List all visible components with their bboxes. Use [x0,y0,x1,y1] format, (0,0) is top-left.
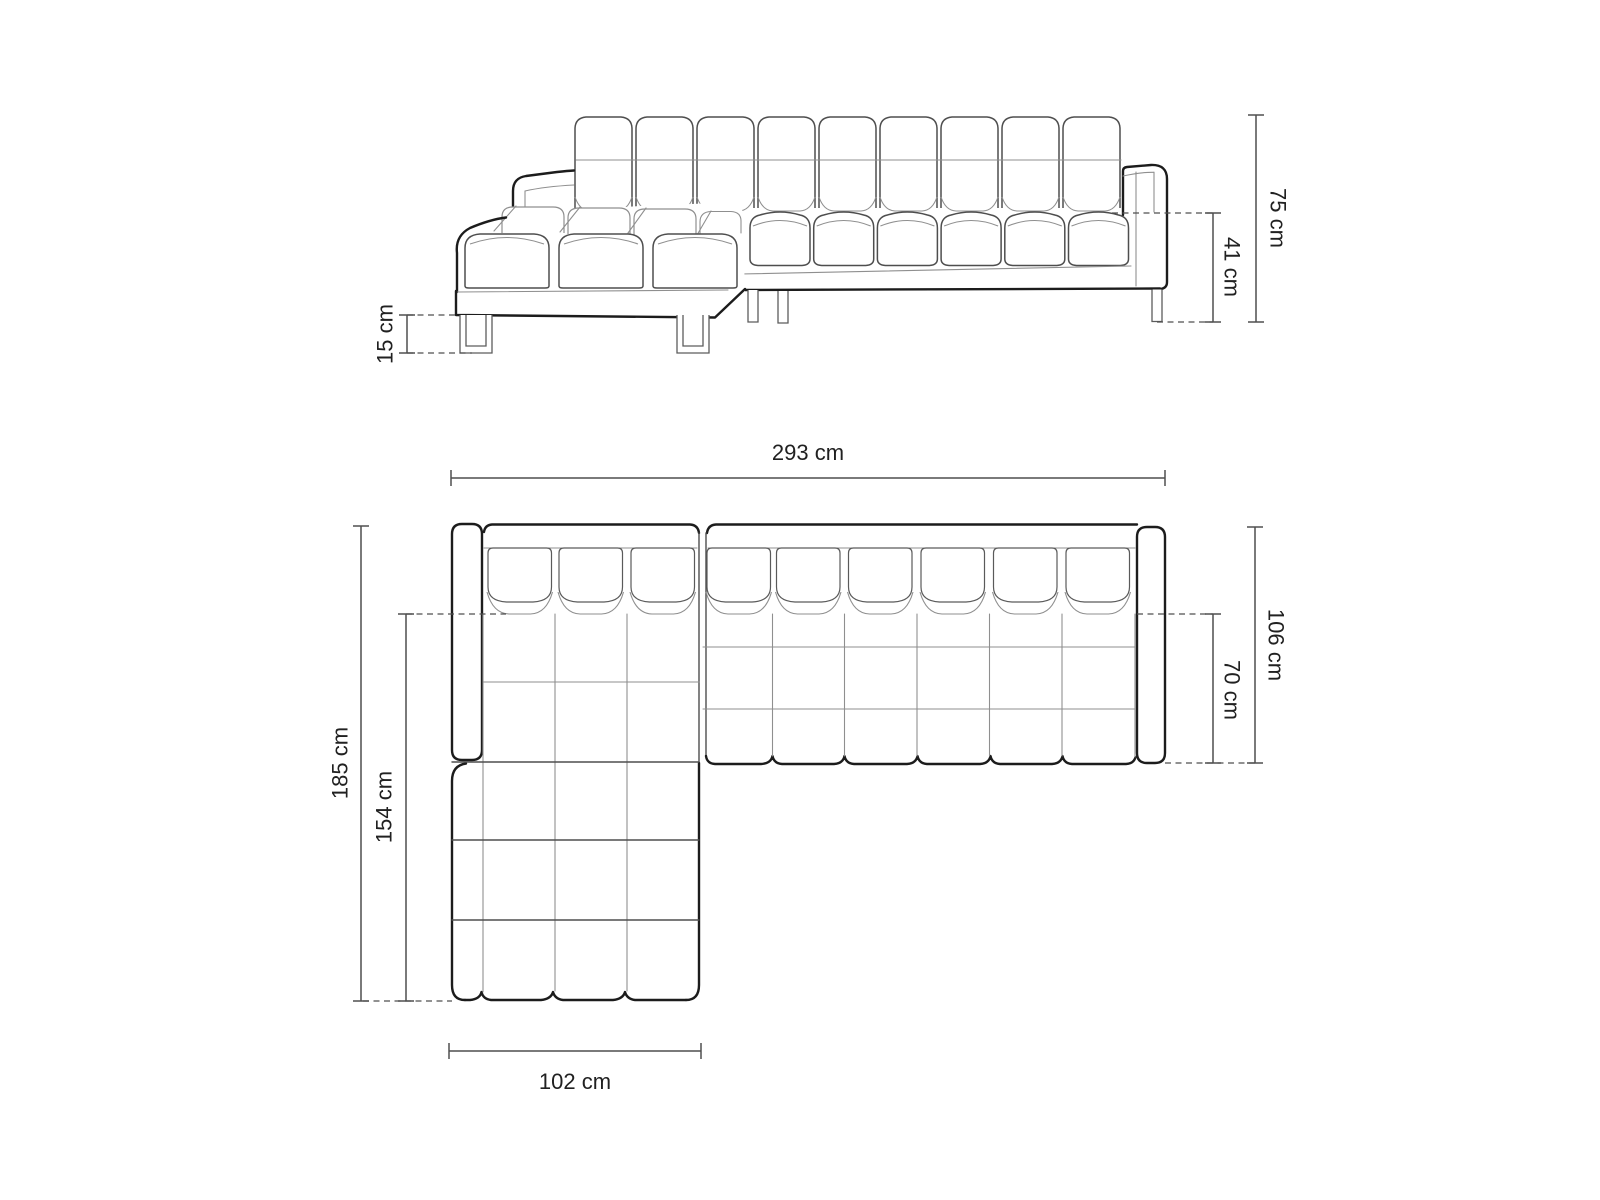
plan-back-cushion [1065,548,1131,614]
back-cushion [880,117,937,211]
back-cushion [1063,117,1120,211]
chaise-front-edge-scallops [465,992,686,1000]
left-armrest-inner-line [525,185,574,191]
seat-cushion [941,212,1001,266]
dim-chaise-width: 102 cm [449,1043,701,1094]
front-seat-cushions [750,212,1129,266]
plan-back-cushion [848,548,914,614]
plan-module-seam [699,533,706,763]
back-cushion [697,117,754,211]
chaise-leg [677,315,709,353]
dim-overall-height: 75 cm [1248,115,1290,322]
plan-back-cushion [920,548,986,614]
sofa-leg [1152,290,1162,322]
chaise-tuft [568,208,630,234]
chaise-front-cushion [559,234,643,288]
plan-back-cushion [993,548,1059,614]
base-top-edge [740,266,1131,274]
seat-grid-horizontals-main [703,647,1135,709]
chaise-left-edge [452,764,466,1001]
seat-cushion [877,212,937,266]
sofa-leg [778,291,788,323]
right-armrest-outline [1123,165,1167,289]
chaise-module-seams [452,762,699,920]
dim-chaise-seat-depth: 154 cm [372,614,506,1001]
dim-seat-depth: 70 cm [1137,614,1255,763]
dim-chaise-total-depth-label: 185 cm [328,727,353,799]
plan-backrest [484,548,1135,614]
front-base [740,266,1160,290]
front-chaise [456,202,745,353]
plan-front-edge-scallops [706,756,1136,764]
back-cushion [636,117,693,211]
back-cushion [1002,117,1059,211]
plan-view [452,524,1165,1000]
dim-leg-height-label: 15 cm [373,304,398,364]
plan-back-cushion [487,548,553,614]
dim-chaise-total-depth: 185 cm [328,526,452,1001]
dim-overall-depth-label: 106 cm [1263,609,1288,681]
seat-cushion [1005,212,1065,266]
dim-seat-depth-label: 70 cm [1219,660,1244,720]
plan-seat-grid [452,614,1135,992]
front-right-armrest [1123,165,1167,289]
dim-seat-height-label: 41 cm [1219,237,1244,297]
seat-grid-verticals-chaise [483,614,627,992]
dim-overall-height-label: 75 cm [1265,188,1290,248]
plan-top-edge-right [707,525,1137,534]
dim-chaise-width-label: 102 cm [539,1069,611,1094]
dim-chaise-seat-depth-label: 154 cm [372,771,397,843]
dim-overall-width-label: 293 cm [772,440,844,465]
chaise-front-cushion [653,234,737,288]
back-cushion [758,117,815,211]
sofa-leg [748,290,758,322]
sofa-dimension-diagram: 75 cm 41 cm 15 cm 293 cm 106 cm [0,0,1600,1200]
plan-top-edge-left [484,525,699,534]
front-view [456,117,1167,353]
back-cushion [575,117,632,211]
plan-back-cushion [630,548,696,614]
plan-back-cushion [776,548,842,614]
back-cushion [819,117,876,211]
dim-overall-width: 293 cm [451,440,1165,486]
plan-back-cushion [706,548,772,614]
plan-back-cushion [558,548,624,614]
dim-overall-depth: 106 cm [1247,527,1288,763]
seat-cushion [814,212,874,266]
front-backrest [575,117,1121,211]
back-cushion [941,117,998,211]
chaise-leg [460,315,492,353]
chaise-front-cushion [465,234,549,288]
front-main-legs [748,290,1162,324]
chaise-tuft [634,209,696,235]
right-armrest-inner-top [1123,172,1154,176]
seat-cushion [1069,212,1129,266]
plan-right-armrest [1137,527,1165,763]
plan-left-armrest [452,524,482,760]
seat-grid-verticals-main [773,614,1136,757]
seat-cushion [750,212,810,266]
base-bottom-edge [745,289,1160,291]
chaise-right-edge [686,763,699,1000]
dim-seat-height: 41 cm [1112,213,1244,322]
